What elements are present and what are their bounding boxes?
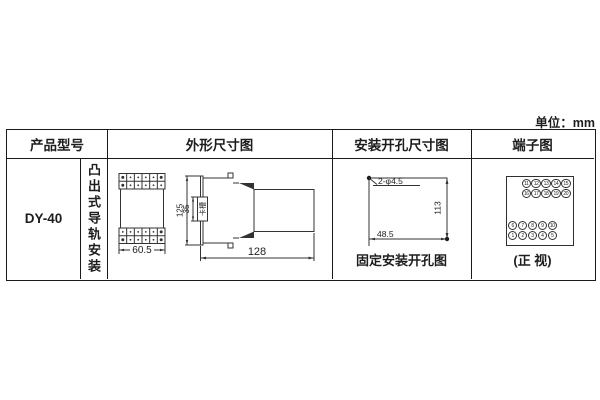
outline-drawing: 60.5 125 [107,158,332,279]
terminal-11: 11 [522,179,531,188]
header-mounting-dim-label: 安装开孔尺寸图 [354,134,449,154]
holes-label: 2-φ4.5 [378,176,403,186]
mounting-drawing-caption: 固定安装开孔图 [332,250,471,269]
terminal-4: 4 [538,231,547,240]
terminal-row: 678910 [508,221,557,231]
header-mounting-dim: 安装开孔尺寸图 [332,130,471,158]
product-model-value: DY-40 [25,211,63,226]
mounting-type-value: 凸出式导轨安装 [87,163,100,275]
header-outline-dim: 外形尺寸图 [107,130,332,158]
terminal-diagram-cell: 11121314151617181920 67891012345 (正 视) [471,158,594,279]
terminal-14: 14 [551,179,560,188]
vertical-pitch-label: 113 [433,201,443,215]
terminal-15: 15 [561,179,570,188]
slot-label: 卡槽 [198,202,207,216]
outline-drawing-cell: 60.5 125 [107,158,332,279]
datasheet-page: 单位：mm 产品型号 外形尺寸图 安装开孔尺寸图 端子图 DY-40 凸出式导轨… [0,0,600,400]
terminal-7: 7 [518,221,527,230]
mounting-drawing-cell: 2-φ4.5 113 48.5 固定安装开孔图 [332,158,471,279]
dim-front-width: 60.5 [132,245,152,256]
terminal-17: 17 [531,189,540,198]
header-product-model-label: 产品型号 [30,134,84,154]
terminal-19: 19 [551,189,560,198]
terminal-3: 3 [528,231,537,240]
spec-table: 产品型号 外形尺寸图 安装开孔尺寸图 端子图 DY-40 凸出式导轨安装 [6,129,596,281]
terminal-row: 12345 [508,231,557,241]
terminal-group-bottom: 67891012345 [508,221,557,241]
terminal-13: 13 [541,179,550,188]
product-model-cell: DY-40 [7,158,80,279]
dim-depth: 128 [248,246,266,258]
terminal-5: 5 [548,231,557,240]
terminal-group-top: 11121314151617181920 [522,179,571,199]
terminal-18: 18 [541,189,550,198]
dim-slot-height: 35 [182,204,191,213]
terminal-12: 12 [531,179,540,188]
terminal-2: 2 [518,231,527,240]
header-terminal-label: 端子图 [512,134,553,154]
terminal-8: 8 [528,221,537,230]
header-outline-dim-label: 外形尺寸图 [186,134,254,154]
terminal-box: 11121314151617181920 67891012345 [506,176,574,246]
terminal-diagram-caption: (正 视) [471,250,594,269]
horizontal-pitch-label: 48.5 [377,229,394,239]
terminal-9: 9 [538,221,547,230]
terminal-20: 20 [561,189,570,198]
terminal-row: 1617181920 [522,189,571,199]
terminal-6: 6 [508,221,517,230]
header-terminal: 端子图 [471,130,594,158]
terminal-1: 1 [508,231,517,240]
terminal-10: 10 [548,221,557,230]
terminal-16: 16 [522,189,531,198]
mounting-type-cell: 凸出式导轨安装 [80,158,107,279]
header-product-model: 产品型号 [7,130,107,158]
terminal-row: 1112131415 [522,179,571,189]
